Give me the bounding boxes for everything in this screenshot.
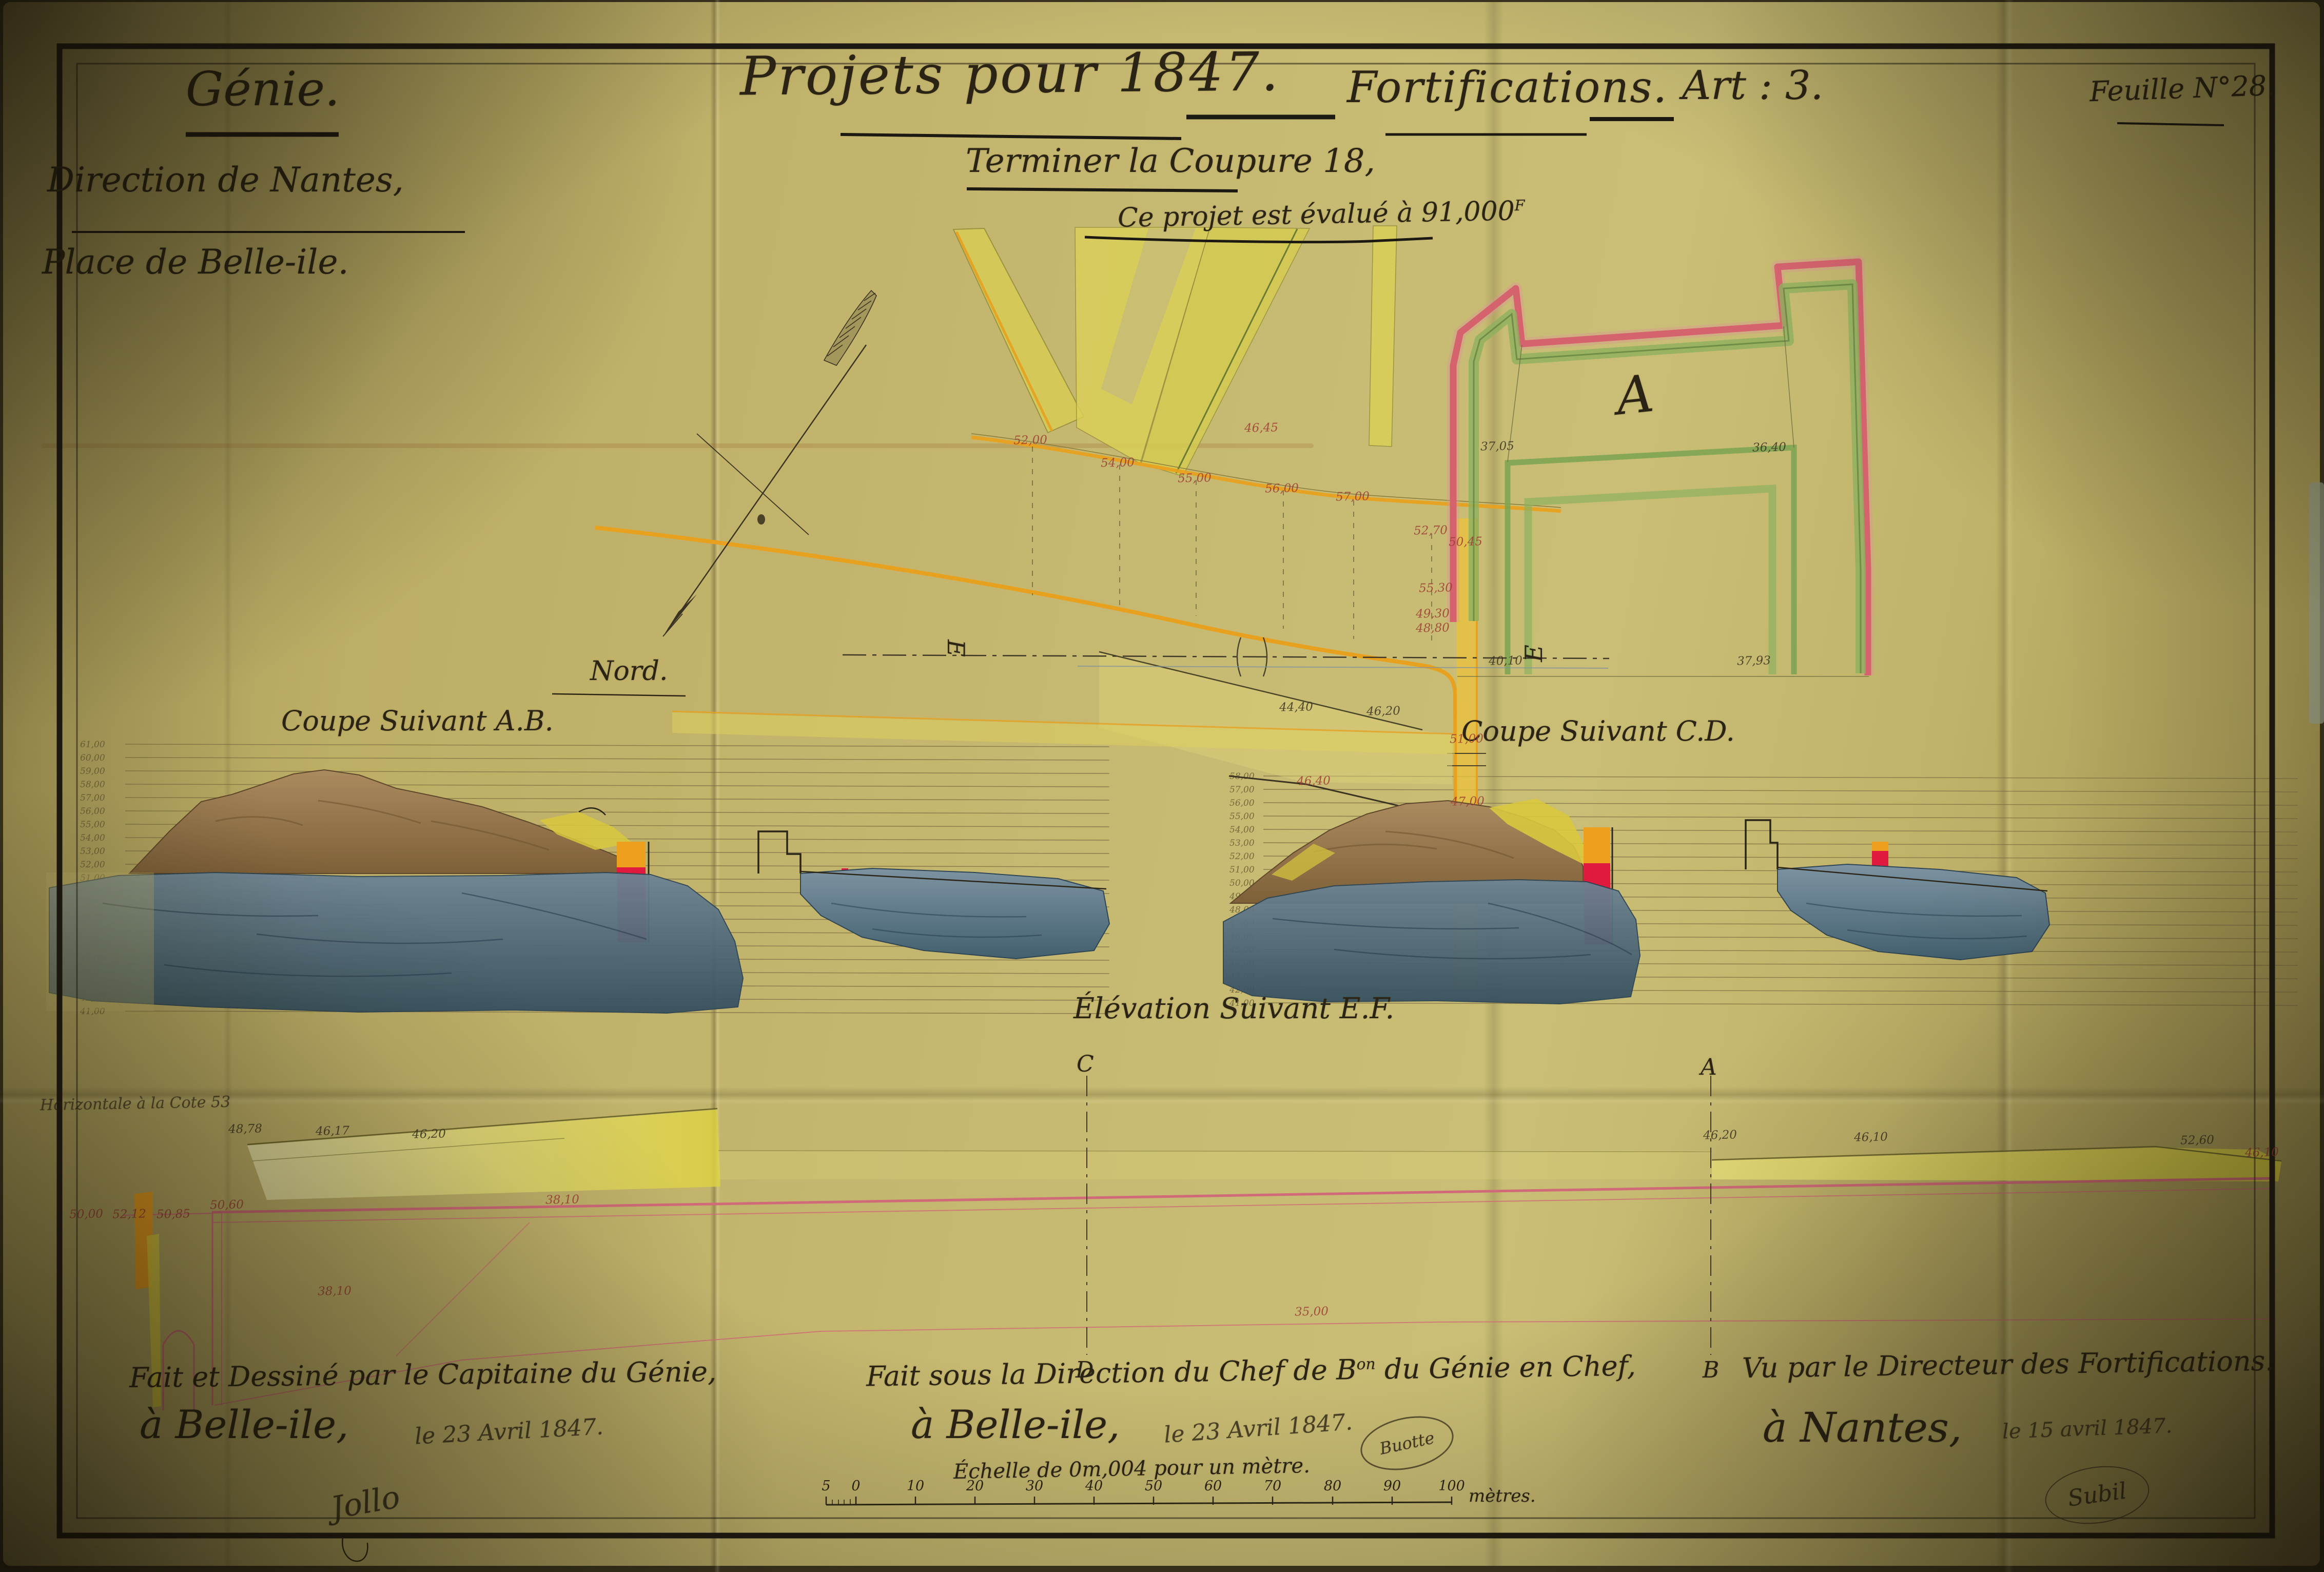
label-direction: Direction de Nantes, xyxy=(47,163,404,197)
svg-text:100: 100 xyxy=(1438,1478,1465,1494)
marker-a: A xyxy=(1701,1056,1717,1079)
plan-label-e-right: E xyxy=(1522,645,1546,662)
svg-text:80: 80 xyxy=(1324,1478,1341,1494)
svg-text:55,00: 55,00 xyxy=(80,820,105,830)
svg-text:56,00: 56,00 xyxy=(1229,798,1255,808)
label-estimate: Ce projet est évalué à 91,000F xyxy=(1118,198,1525,231)
plan-label-a: A xyxy=(1614,367,1656,422)
svg-text:5: 5 xyxy=(822,1478,830,1494)
svg-text:10: 10 xyxy=(907,1478,924,1494)
sig-center-signature: Buotte xyxy=(1378,1429,1436,1457)
label-coupe-ab: Coupe Suivant A.B. xyxy=(281,707,554,735)
label-elevation-ef: Élévation Suivant E.F. xyxy=(1073,995,1394,1023)
label-genie: Génie. xyxy=(186,66,340,113)
photographed-plan-sheet: 61,0060,0059,0058,0057,0056,0055,0054,00… xyxy=(0,0,2324,1572)
title-projets: Projets pour 1847. xyxy=(740,45,1281,103)
section-ab-graphics xyxy=(46,770,1109,1013)
svg-text:57,00: 57,00 xyxy=(80,793,105,803)
sig-center-line1-pre: Fait sous la Direction du Chef de B xyxy=(866,1353,1357,1392)
scale-bar: 50102030405060708090100 xyxy=(822,1478,1464,1505)
scale-caption: Échelle de 0m,004 pour un mètre. xyxy=(953,1455,1310,1482)
plan-label-e-left: E xyxy=(944,639,968,657)
north-arrow xyxy=(552,290,876,696)
scale-unit: mètres. xyxy=(1469,1487,1536,1505)
svg-text:54,00: 54,00 xyxy=(1229,825,1255,835)
marker-b: B xyxy=(1703,1359,1719,1382)
sig-left-line1: Fait et Dessiné par le Capitaine du Géni… xyxy=(129,1358,717,1392)
svg-text:70: 70 xyxy=(1264,1478,1281,1494)
svg-text:60,00: 60,00 xyxy=(80,753,105,763)
svg-text:90: 90 xyxy=(1383,1478,1401,1494)
svg-text:61,00: 61,00 xyxy=(80,740,105,750)
label-place: Place de Belle-ile. xyxy=(42,245,349,279)
svg-text:58,00: 58,00 xyxy=(80,780,105,790)
svg-text:52,00: 52,00 xyxy=(80,860,105,870)
title-fortifications: Fortifications. xyxy=(1347,66,1668,109)
svg-text:53,00: 53,00 xyxy=(80,846,105,857)
label-feuille: Feuille N°28. xyxy=(2089,72,2276,106)
estimate-currency: F xyxy=(1514,197,1525,214)
label-horizontale-note: Horizontale à la Cote 53 xyxy=(40,1095,231,1113)
label-subtitle: Terminer la Coupure 18, xyxy=(966,145,1375,178)
marker-c: C xyxy=(1077,1053,1094,1076)
svg-text:54,00: 54,00 xyxy=(80,833,105,843)
label-nord: Nord. xyxy=(590,658,668,685)
svg-text:56,00: 56,00 xyxy=(80,806,105,817)
fort-plan xyxy=(1453,262,1869,676)
sig-center-place: à Belle-ile, xyxy=(911,1405,1120,1444)
sig-right-date: le 15 avril 1847. xyxy=(2002,1415,2172,1442)
svg-text:57,00: 57,00 xyxy=(1229,785,1255,795)
sig-left-place: à Belle-ile, xyxy=(140,1405,348,1444)
svg-text:59,00: 59,00 xyxy=(80,766,105,777)
sig-right-place: à Nantes, xyxy=(1763,1407,1962,1448)
title-art: Art : 3. xyxy=(1682,66,1823,106)
svg-text:52,00: 52,00 xyxy=(1229,851,1255,862)
drawing-layer: 61,0060,0059,0058,0057,0056,0055,0054,00… xyxy=(0,0,2324,1572)
svg-text:50: 50 xyxy=(1145,1478,1162,1494)
sig-right-signature: Subil xyxy=(2066,1480,2128,1510)
sig-center-line1-sup: on xyxy=(1356,1355,1375,1374)
svg-text:60: 60 xyxy=(1204,1478,1222,1494)
svg-text:55,00: 55,00 xyxy=(1229,811,1255,822)
label-coupe-cd: Coupe Suivant C.D. xyxy=(1461,717,1735,745)
svg-text:53,00: 53,00 xyxy=(1229,838,1255,848)
section-cd-graphics xyxy=(1223,799,2049,1004)
svg-text:0: 0 xyxy=(851,1478,860,1494)
sig-center-line1-post: du Génie en Chef, xyxy=(1375,1350,1636,1386)
svg-text:51,00: 51,00 xyxy=(1229,865,1255,875)
sig-right-line1: Vu par le Directeur des Fortifications. xyxy=(1742,1347,2274,1382)
